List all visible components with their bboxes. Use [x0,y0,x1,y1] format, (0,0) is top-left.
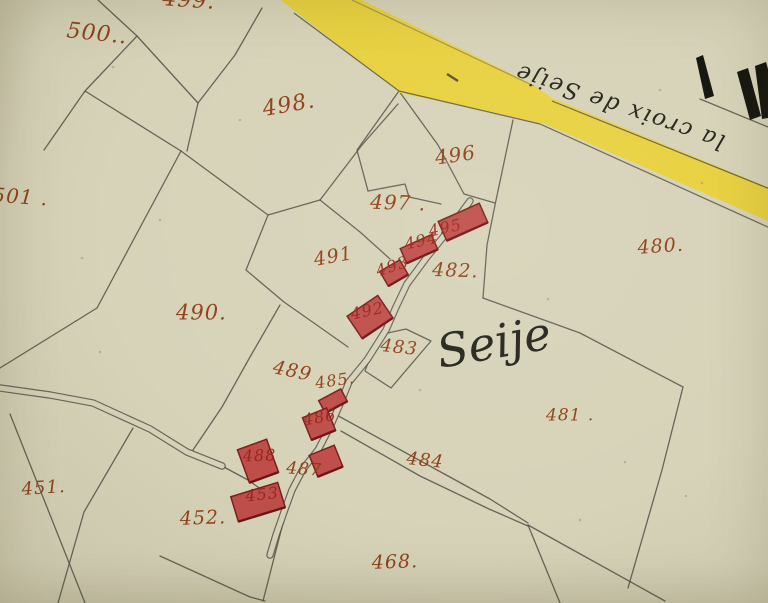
parcel-number: 452. [178,506,226,530]
parcel-boundary [137,36,198,151]
parcel-number: 500.. [65,18,128,49]
parcel-number: 468. [370,550,418,574]
parcel-number: 481 . [545,405,594,425]
parcel-boundary [341,431,528,526]
parcel-boundary [85,91,181,151]
map-canvas: 500..499.501 .498.496497 .482.480.491490… [0,0,768,603]
paper-speck [701,182,704,185]
paper-speck [112,66,115,69]
parcel-boundary [198,8,262,103]
parcel-boundary [528,525,560,603]
paper-speck [659,89,662,92]
dirt-road-surface [0,388,222,466]
parcel-number: 480. [636,234,685,259]
parcel-boundary [160,556,265,601]
parcel-number: 490. [175,300,227,324]
parcel-boundary [193,305,280,450]
paper-speck [547,298,550,301]
parcel-boundary [357,91,399,191]
parcel-number: 484 [404,448,444,473]
parcel-boundary [483,120,513,298]
cadastral-map: 500..499.501 .498.496497 .482.480.491490… [0,0,768,603]
cross-symbol-fragment [696,55,714,99]
parcel-boundary [181,151,320,215]
paper-speck [81,257,84,260]
parcel-number: 501 . [0,183,49,211]
parcel-number: 497 . [369,190,427,216]
paper-speck [239,119,242,122]
parcel-number: 489 [270,356,314,386]
parcel-boundary [58,428,133,603]
parcel-number: 451. [20,476,66,500]
parcel-boundary [320,104,398,200]
parcel-number: 487 [285,458,323,480]
paper-speck [419,389,422,392]
parcel-boundary [528,525,665,601]
parcel-number: 499. [161,0,217,15]
paper-speck [685,495,688,498]
parcel-number: 482. [431,259,479,283]
paper-speck [99,351,102,354]
paper-speck [624,461,627,464]
paper-speck [159,219,162,222]
parcel-number: 498. [260,88,318,122]
parcel-boundary [10,414,85,603]
building-number: 453 [243,483,279,506]
parcel-boundary [0,151,181,368]
parcel-number: 483 [378,335,418,360]
yellow-road [273,0,768,224]
place-name-script: Seije [433,306,556,379]
building-number: 488 [241,445,276,465]
paper-speck [579,519,582,522]
parcel-boundary [246,215,348,347]
parcel-number: 496 [432,140,477,170]
parcel-number: 491 [311,242,354,271]
